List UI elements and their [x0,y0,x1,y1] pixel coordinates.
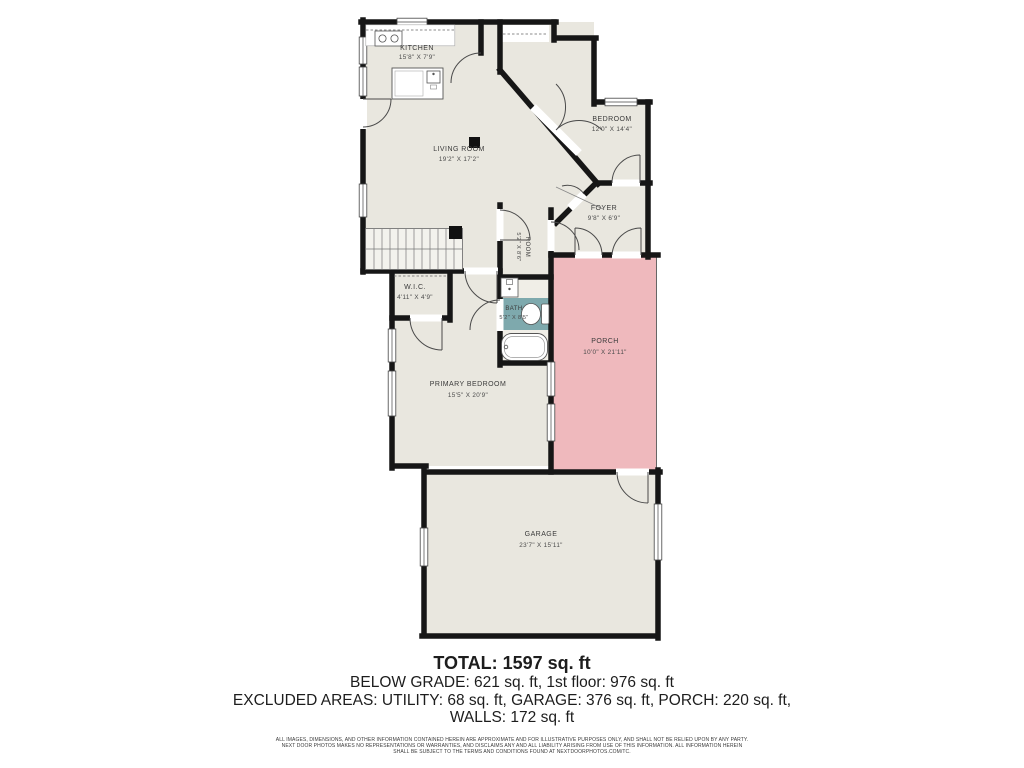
room-dims-kitchen: 15'8" X 7'9" [399,54,435,61]
room-label-garage: GARAGE [525,531,558,538]
room-dims-primary-bedroom: 15'5" X 20'9" [448,392,488,399]
room-dims-bath: 5'2" X 8'5" [499,315,528,321]
walls-area-text: WALLS: 172 sq. ft [0,709,1024,727]
toilet-bowl [522,304,541,325]
room-dims-garage: 23'7" X 15'11" [519,542,563,549]
room-label-kitchen: KITCHEN [400,45,434,52]
stair-newel [449,226,462,239]
area-summary: TOTAL: 1597 sq. ft BELOW GRADE: 621 sq. … [0,652,1024,727]
room-label-room: ROOM [524,237,530,257]
excluded-areas-text: EXCLUDED AREAS: UTILITY: 68 sq. ft, GARA… [0,692,1024,710]
room-dims-living-room: 19'2" X 17'2" [439,156,479,163]
room-label-bedroom: BEDROOM [592,116,631,123]
room-label-wic: W.I.C. [404,284,426,291]
room-label-bath: BATH [505,306,522,312]
burner-icon [391,35,398,42]
disclaimer-line-3: SHALL BE SUBJECT TO THE TERMS AND CONDIT… [0,749,1024,755]
room-label-porch: PORCH [591,338,619,345]
room-label-living-room: LIVING ROOM [433,146,485,153]
room-label-foyer: FOYER [591,205,617,212]
closet-floor [502,25,549,42]
room-label-primary-bedroom: PRIMARY BEDROOM [430,381,507,388]
room-dims-bedroom: 12'0" X 14'4" [592,126,632,133]
room-dims-wic: 4'11" X 4'9" [397,294,433,301]
burner-icon [379,35,386,42]
disclaimer: ALL IMAGES, DIMENSIONS, AND OTHER INFORM… [0,737,1024,756]
floor-areas [363,22,658,636]
room-dims-porch: 10'0" X 21'11" [583,349,627,356]
total-area-text: TOTAL: 1597 sq. ft [0,652,1024,674]
porch-area [553,257,656,471]
toilet-tank [542,304,550,324]
floor-garage [424,472,658,636]
stairs [366,226,463,270]
room-dims-foyer: 9'8" X 6'9" [588,215,620,222]
floor-plan-page: KITCHEN 15'8" X 7'9" LIVING ROOM 19'2" X… [0,0,1024,768]
below-grade-text: BELOW GRADE: 621 sq. ft, 1st floor: 976 … [0,674,1024,692]
room-dims-room: 5'2" X 8'6" [515,232,521,261]
